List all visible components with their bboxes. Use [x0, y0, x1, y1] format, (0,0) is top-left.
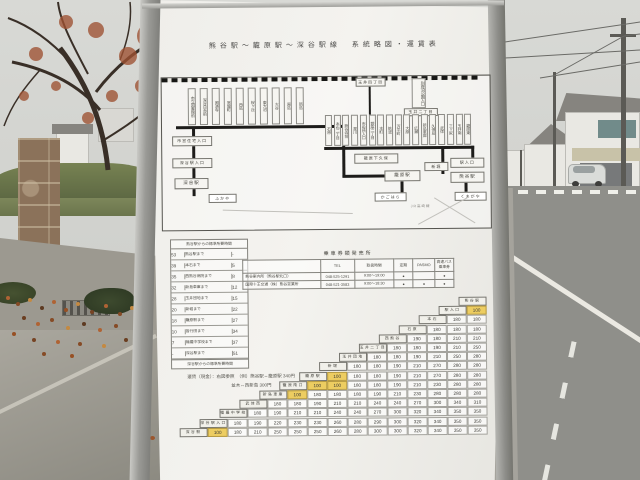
- fare-cell: 180: [307, 390, 327, 399]
- time-from-fukaya: 35: [171, 274, 185, 279]
- route-line: [471, 146, 474, 158]
- fare-cell: 190: [407, 334, 427, 343]
- route-line: [342, 174, 388, 177]
- fare-station: 熊谷駅: [459, 297, 487, 306]
- fare-cell: 210: [407, 371, 427, 380]
- fare-cell: 280: [467, 370, 487, 379]
- fare-cell: 230: [407, 389, 427, 398]
- fare-station: 新島車庫: [259, 390, 287, 399]
- fare-cell: 250: [268, 427, 288, 436]
- map-station: 新島車庫: [421, 114, 428, 145]
- fare-cell: 190: [407, 352, 427, 361]
- map-station: 原島: [284, 87, 292, 124]
- fare-cell: 210: [287, 409, 307, 418]
- map-station: 筑波: [386, 114, 393, 145]
- fare-station: 玉井二丁目: [359, 343, 387, 352]
- fare-station: 武体西: [239, 400, 267, 409]
- time-table-row: 53熊谷駅まで-: [171, 249, 247, 261]
- map-station: 万平町: [395, 114, 402, 145]
- ticket-cell: ●: [413, 280, 435, 288]
- jr-takasaki-line: [162, 76, 478, 83]
- fare-cell: 260: [328, 417, 348, 426]
- fare-station: 籠原南口: [279, 381, 307, 390]
- fare-cell: 280: [447, 380, 467, 389]
- time-table-row: 32新島車庫まで12: [171, 282, 247, 294]
- map-sketch-line: [223, 210, 353, 214]
- map-station: 広瀬: [412, 114, 419, 145]
- time-station-label: 西熊谷病院まで: [185, 273, 232, 278]
- fare-cell: 250: [288, 427, 308, 436]
- time-table-row: 39本石まで5: [171, 260, 247, 272]
- ticket-cell: ●: [435, 279, 454, 287]
- fare-station: 深谷駅入口: [200, 418, 228, 427]
- fare-cell: 270: [367, 408, 387, 417]
- fare-station: 玉井団地: [339, 353, 367, 362]
- fare-cell: 210: [427, 352, 447, 361]
- map-station: 籠原駅: [384, 170, 420, 181]
- fare-matrix-row: 本石180180: [419, 315, 487, 325]
- map-station: 新堀: [424, 162, 448, 171]
- ticket-cell: ●: [435, 271, 454, 279]
- fare-cell: 180: [228, 418, 248, 427]
- fare-cell: 280: [447, 389, 467, 398]
- fare-cell: 350: [468, 416, 488, 425]
- map-station: 新島: [296, 87, 304, 124]
- fare-cell: 210: [447, 343, 467, 352]
- ticket-col-header: [243, 260, 321, 274]
- fare-cell: 280: [427, 389, 447, 398]
- fare-cell: 180: [447, 315, 467, 324]
- fare-cell: 240: [367, 399, 387, 408]
- fare-station: 深谷駅: [180, 428, 208, 437]
- map-station: 熊谷駅: [450, 172, 484, 183]
- fare-cell: 300: [368, 426, 388, 435]
- fare-matrix-row: 石原180180180: [399, 324, 487, 334]
- ticket-office-table: TEL取扱時間定期PASMO高速バス乗車券熊谷案内所（熊谷駅北口）048-525…: [242, 258, 454, 290]
- map-station: 深谷日赤前: [200, 88, 208, 125]
- sign-content: 熊谷駅～籠原駅～深谷駅線 系統略図・運賃表 玉井四丁目 別府沼公園入口 玉井二丁…: [148, 0, 504, 480]
- fare-cell: 210: [407, 380, 427, 389]
- ticket-cell: 9:00～18:30: [354, 280, 394, 288]
- fare-cell: 260: [328, 427, 348, 436]
- fare-cell: 280: [467, 361, 487, 370]
- fare-cell: 210: [327, 399, 347, 408]
- fare-cell: 280: [348, 417, 368, 426]
- fare-cell: 350: [448, 416, 468, 425]
- map-station: 銀座二丁目: [368, 115, 375, 146]
- ticket-col-header: TEL: [320, 259, 354, 272]
- fare-cell: 350: [468, 425, 488, 434]
- map-station: 常盤町: [224, 88, 232, 125]
- fare-cell: 320: [408, 426, 428, 435]
- fare-station: 籠原駅: [299, 372, 327, 381]
- map-station: 国済寺: [212, 88, 220, 125]
- fare-cell: 300: [388, 426, 408, 435]
- ticket-cell: 048-521-3583: [321, 280, 355, 288]
- fare-cell: 100: [208, 428, 228, 437]
- fare-cell: 240: [387, 398, 407, 407]
- fare-cell: 230: [288, 418, 308, 427]
- fare-cell: 190: [367, 389, 387, 398]
- fare-cell: 210: [307, 408, 327, 417]
- jr-line-label: JR高崎線: [411, 204, 431, 209]
- map-station: 東大沼: [260, 88, 268, 125]
- fare-cell: 340: [428, 426, 448, 435]
- fare-cell: 180: [347, 380, 367, 389]
- fare-cell: 210: [248, 427, 268, 436]
- sign-title: 熊谷駅～籠原駅～深谷駅線 系統略図・運賃表: [148, 38, 500, 51]
- fare-cell: 180: [387, 343, 407, 352]
- map-sketch-line: [418, 196, 469, 225]
- map-station: 市立図書館前: [188, 88, 196, 125]
- fare-matrix-row: 駅入口100: [439, 306, 487, 315]
- fare-cell: 300: [387, 408, 407, 417]
- fare-cell: 180: [267, 400, 287, 409]
- map-station: 石原: [325, 115, 332, 146]
- fare-cell: 100: [467, 306, 487, 315]
- fare-cell: 210: [347, 399, 367, 408]
- ticket-office-title: 乗車券類発売所: [242, 249, 454, 258]
- fare-cell: 180: [427, 334, 447, 343]
- time-station-label: 本石まで: [185, 262, 232, 267]
- fare-cell: 270: [427, 371, 447, 380]
- fare-cell: 190: [387, 371, 407, 380]
- fare-cell: 290: [368, 417, 388, 426]
- time-from-fukaya: 39: [171, 263, 185, 268]
- fare-cell: 250: [467, 343, 487, 352]
- map-station: 西島: [236, 88, 244, 125]
- jr-station: くまがや: [455, 192, 487, 201]
- jr-station: ふかや: [209, 194, 237, 203]
- fare-cell: 100: [327, 381, 347, 390]
- fare-cell: 340: [427, 407, 447, 416]
- fare-station: 石原: [399, 325, 427, 334]
- fare-cell: 270: [407, 398, 427, 407]
- map-station: 深谷駅: [174, 178, 208, 189]
- time-station-label: 熊谷駅まで: [185, 251, 232, 256]
- map-station: 籠原下久保: [354, 153, 398, 163]
- fare-matrix-row: 深谷駅1001802102502502502602803003003203403…: [180, 425, 488, 437]
- fare-cell: 210: [387, 389, 407, 398]
- jr-station: かごはら: [375, 192, 407, 201]
- fare-cell: 320: [407, 408, 427, 417]
- fare-cell: 100: [287, 390, 307, 399]
- fare-cell: 240: [347, 408, 367, 417]
- map-station: 久保島: [429, 114, 436, 145]
- fare-cell: 190: [248, 418, 268, 427]
- fare-cell: 190: [387, 380, 407, 389]
- fare-cell: 320: [408, 417, 428, 426]
- fare-cell: 270: [427, 361, 447, 370]
- time-from-fukaya: 53: [171, 252, 185, 257]
- map-station: 深谷駅入口: [172, 158, 212, 168]
- fare-cell: 180: [407, 343, 427, 352]
- fare-cell: 180: [367, 371, 387, 380]
- ticket-col-header: PASMO: [413, 259, 435, 272]
- fare-station: 本石: [419, 315, 447, 324]
- route-line: [324, 146, 474, 150]
- fare-cell: 190: [387, 362, 407, 371]
- ticket-col-header: 定期: [394, 259, 413, 272]
- ticket-cell: ●: [394, 272, 413, 280]
- fare-cell: 180: [367, 353, 387, 362]
- fare-cell: 350: [467, 407, 487, 416]
- fare-cell: 180: [367, 362, 387, 371]
- time-table-row: 35西熊谷病院まで8: [171, 271, 247, 283]
- fare-cell: 180: [347, 390, 367, 399]
- map-station: 三ヶ尻: [447, 114, 454, 145]
- ticket-cell: [413, 272, 435, 280]
- map-station: 市役所入口: [360, 115, 367, 146]
- fare-cell: 190: [267, 409, 287, 418]
- fare-cell: 230: [308, 418, 328, 427]
- fare-cell: 350: [447, 407, 467, 416]
- fare-cell: 310: [467, 398, 487, 407]
- fare-cell: 240: [327, 408, 347, 417]
- fare-matrix: 熊谷駅駅入口100本石180180石原180180180西熊谷190180210…: [173, 297, 488, 440]
- fare-cell: 230: [427, 380, 447, 389]
- fare-cell: 220: [268, 418, 288, 427]
- fare-cell: 100: [307, 381, 327, 390]
- fare-cell: 210: [447, 334, 467, 343]
- map-station: 桜ヶ丘: [248, 88, 256, 125]
- fare-cell: 180: [287, 399, 307, 408]
- map-station: 星川: [351, 115, 358, 146]
- map-station: 本町: [377, 114, 384, 145]
- fare-station: 幡羅中学校: [219, 409, 247, 418]
- fare-cell: 280: [447, 370, 467, 379]
- fare-cell: 280: [467, 379, 487, 388]
- fare-cell: 280: [467, 352, 487, 361]
- fare-cell: 180: [347, 371, 367, 380]
- street-photo-scene: 熊谷駅～籠原駅～深谷駅線 系統略図・運賃表 玉井四丁目 別府沼公園入口 玉井二丁…: [0, 0, 640, 480]
- map-station: 別府沼公園入口: [412, 78, 426, 108]
- fare-cell: 100: [327, 371, 347, 380]
- map-station: 玉井南: [455, 114, 462, 145]
- map-station: 籠原東: [464, 114, 471, 145]
- route-map: 玉井四丁目 別府沼公園入口 玉井二丁目 新堀 市営住宅入口 深谷駅入口 深谷駅 …: [161, 75, 492, 232]
- fare-station: 西熊谷: [379, 334, 407, 343]
- fare-cell: 280: [447, 361, 467, 370]
- fare-cell: 180: [467, 315, 487, 324]
- fare-cell: 340: [428, 417, 448, 426]
- ticket-cell: ●: [394, 280, 413, 288]
- route-line: [369, 87, 371, 115]
- fare-cell: 250: [447, 352, 467, 361]
- fare-cell: 180: [447, 324, 467, 333]
- fare-cell: 180: [327, 390, 347, 399]
- map-station: 本石二丁目: [334, 115, 341, 146]
- fare-cell: 340: [447, 398, 467, 407]
- fare-cell: 190: [307, 399, 327, 408]
- fare-cell: 180: [247, 409, 267, 418]
- fare-cell: 180: [228, 427, 248, 436]
- fare-cell: 210: [407, 362, 427, 371]
- fare-cell: 180: [367, 380, 387, 389]
- map-station: 市営住宅入口: [172, 136, 212, 146]
- map-station: 大谷: [272, 87, 280, 124]
- map-station: 大原: [403, 114, 410, 145]
- fare-cell: 180: [427, 325, 447, 334]
- map-station: 武体: [438, 114, 445, 145]
- time-station-label: 新島車庫まで: [185, 284, 232, 289]
- ticket-office-name: 国際十王交通（株）熊谷営業所: [243, 281, 321, 290]
- fare-cell: 280: [467, 389, 487, 398]
- fare-cell: 250: [308, 427, 328, 436]
- fare-matrix-row: 熊谷駅: [459, 297, 487, 306]
- fare-cell: 210: [467, 333, 487, 342]
- fare-cell: 180: [347, 362, 367, 371]
- fare-cell: 300: [388, 417, 408, 426]
- route-line: [176, 125, 344, 129]
- ticket-col-header: 取扱時間: [354, 259, 394, 272]
- fare-cell: 180: [387, 352, 407, 361]
- fare-station: 駅入口: [439, 306, 467, 315]
- fare-station: 新堀: [319, 362, 347, 371]
- fare-cell: 300: [427, 398, 447, 407]
- map-station: 駅入口: [450, 158, 484, 168]
- fare-cell: 280: [348, 426, 368, 435]
- ticket-col-header: 高速バス乗車券: [435, 258, 454, 271]
- fare-cell: 350: [448, 426, 468, 435]
- map-station: 熊谷寺前: [342, 115, 349, 146]
- fare-cell: 190: [427, 343, 447, 352]
- fare-cell: 180: [467, 324, 487, 333]
- time-from-fukaya: 32: [171, 285, 185, 290]
- map-station: 玉井四丁目: [356, 77, 386, 86]
